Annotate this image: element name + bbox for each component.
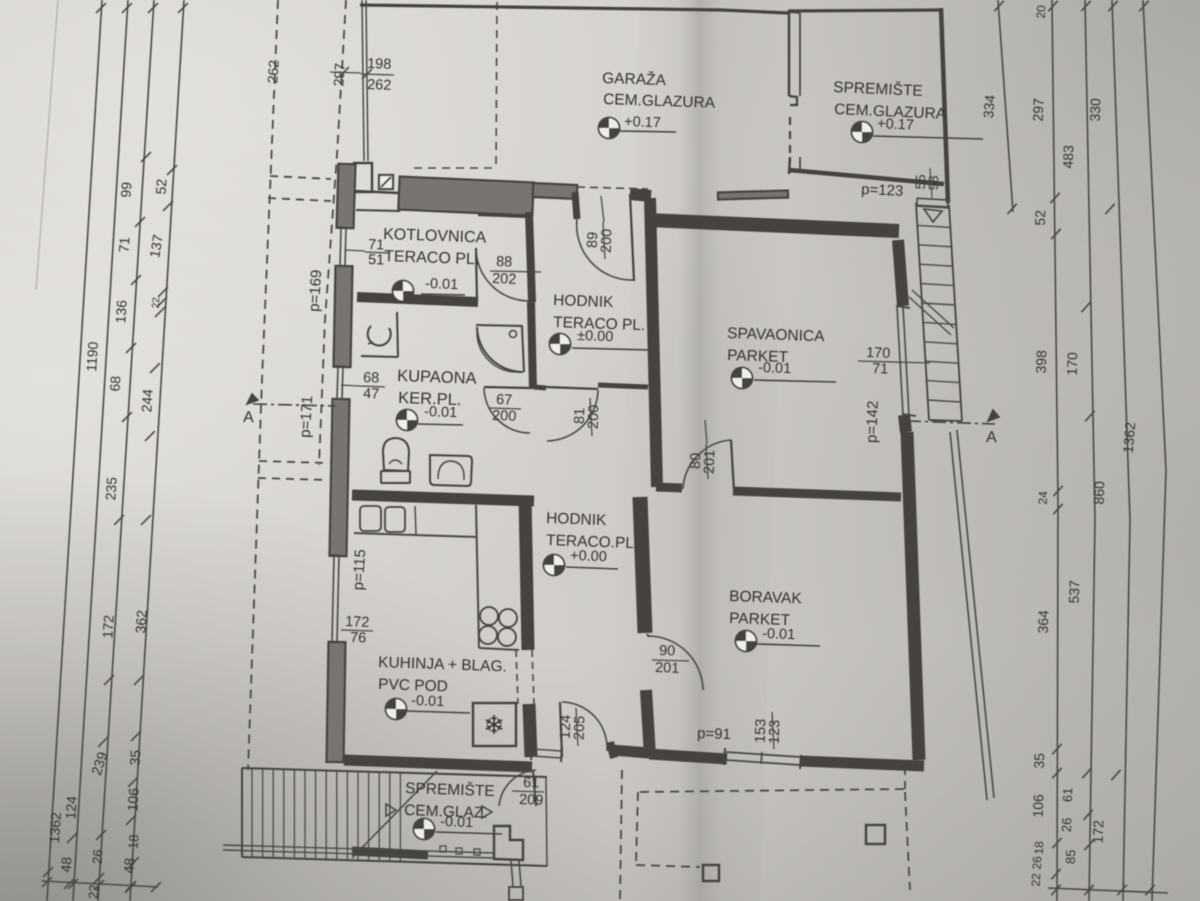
svg-text:47: 47 bbox=[363, 386, 380, 403]
svg-text:61: 61 bbox=[523, 775, 540, 792]
svg-text:201: 201 bbox=[702, 449, 719, 474]
svg-text:68: 68 bbox=[363, 370, 380, 387]
svg-text:362: 362 bbox=[132, 609, 149, 634]
svg-text:A: A bbox=[243, 409, 255, 426]
svg-text:-0.01: -0.01 bbox=[411, 693, 445, 710]
svg-text:398: 398 bbox=[1033, 350, 1050, 374]
svg-text:20: 20 bbox=[1034, 5, 1048, 19]
svg-text:35: 35 bbox=[1031, 753, 1048, 769]
svg-text:202: 202 bbox=[492, 271, 517, 288]
svg-text:123: 123 bbox=[767, 719, 784, 744]
svg-text:-0.01: -0.01 bbox=[762, 626, 796, 643]
svg-text:124: 124 bbox=[62, 795, 79, 820]
svg-text:p=169: p=169 bbox=[306, 269, 326, 312]
svg-text:BORAVAK: BORAVAK bbox=[729, 588, 803, 608]
svg-text:1362: 1362 bbox=[46, 811, 64, 843]
svg-text:22: 22 bbox=[86, 884, 102, 899]
svg-text:26: 26 bbox=[90, 849, 106, 864]
svg-text:860: 860 bbox=[1091, 481, 1108, 505]
svg-text:106: 106 bbox=[1030, 794, 1047, 818]
svg-text:51: 51 bbox=[368, 252, 385, 269]
svg-text:364: 364 bbox=[1035, 610, 1052, 634]
svg-text:52: 52 bbox=[1032, 210, 1049, 226]
svg-text:+0.17: +0.17 bbox=[877, 116, 914, 134]
svg-text:24: 24 bbox=[1036, 491, 1050, 505]
svg-text:48: 48 bbox=[58, 856, 75, 873]
svg-text:22: 22 bbox=[151, 297, 163, 309]
svg-text:334: 334 bbox=[980, 94, 998, 119]
svg-text:52: 52 bbox=[153, 178, 170, 195]
svg-text:136: 136 bbox=[112, 299, 129, 324]
svg-text:22: 22 bbox=[1029, 873, 1043, 887]
svg-text:172: 172 bbox=[345, 614, 370, 631]
svg-text:±0.00: ±0.00 bbox=[577, 328, 614, 345]
svg-text:+0.17: +0.17 bbox=[624, 114, 661, 131]
svg-text:p=171: p=171 bbox=[297, 395, 317, 438]
svg-text:235: 235 bbox=[102, 476, 119, 501]
svg-text:172: 172 bbox=[99, 614, 116, 639]
svg-text:GARAŽA: GARAŽA bbox=[602, 70, 667, 89]
svg-text:88: 88 bbox=[496, 254, 513, 271]
svg-text:SPREMIŠTE: SPREMIŠTE bbox=[405, 780, 495, 800]
svg-text:-0.01: -0.01 bbox=[440, 814, 474, 831]
svg-text:170: 170 bbox=[866, 345, 891, 362]
svg-text:1362: 1362 bbox=[1120, 421, 1139, 454]
svg-text:-0.01: -0.01 bbox=[424, 404, 458, 421]
svg-text:209: 209 bbox=[519, 792, 544, 809]
svg-text:106: 106 bbox=[124, 787, 141, 812]
svg-text:SPAVAONICA: SPAVAONICA bbox=[727, 325, 826, 345]
svg-text:76: 76 bbox=[350, 630, 367, 647]
svg-text:-0.01: -0.01 bbox=[425, 276, 459, 293]
svg-text:❄: ❄ bbox=[483, 710, 505, 740]
svg-text:26: 26 bbox=[1030, 856, 1044, 870]
svg-text:35: 35 bbox=[127, 749, 144, 766]
svg-text:297: 297 bbox=[330, 62, 347, 87]
svg-text:68: 68 bbox=[107, 375, 124, 392]
svg-text:262: 262 bbox=[367, 77, 392, 94]
svg-text:201: 201 bbox=[655, 660, 680, 677]
svg-text:HODNIK: HODNIK bbox=[546, 510, 607, 529]
svg-text:KOTLOVNICA: KOTLOVNICA bbox=[383, 226, 487, 247]
svg-text:483: 483 bbox=[1060, 145, 1077, 169]
svg-text:A: A bbox=[986, 429, 998, 446]
svg-text:TERACO PL.: TERACO PL. bbox=[384, 248, 480, 268]
svg-text:85: 85 bbox=[1063, 849, 1078, 864]
svg-text:98: 98 bbox=[926, 175, 942, 191]
svg-text:48: 48 bbox=[121, 857, 138, 874]
svg-text:18: 18 bbox=[1032, 841, 1046, 855]
svg-text:71: 71 bbox=[116, 236, 133, 253]
svg-text:90: 90 bbox=[659, 643, 676, 660]
svg-text:61: 61 bbox=[1060, 787, 1075, 802]
svg-text:172: 172 bbox=[1090, 820, 1107, 844]
svg-text:HODNIK: HODNIK bbox=[553, 292, 614, 311]
svg-text:p=91: p=91 bbox=[697, 725, 731, 743]
svg-text:200: 200 bbox=[492, 408, 517, 425]
svg-text:1190: 1190 bbox=[83, 341, 101, 372]
svg-text:p=142: p=142 bbox=[863, 400, 881, 443]
svg-text:18: 18 bbox=[126, 834, 142, 849]
svg-text:p=123: p=123 bbox=[861, 181, 904, 200]
svg-text:26: 26 bbox=[1059, 817, 1074, 832]
svg-text:67: 67 bbox=[496, 392, 513, 409]
svg-text:330: 330 bbox=[1087, 98, 1104, 122]
svg-text:-0.01: -0.01 bbox=[758, 360, 792, 377]
svg-text:99: 99 bbox=[118, 181, 135, 198]
svg-text:200: 200 bbox=[599, 228, 616, 253]
svg-text:71: 71 bbox=[368, 237, 385, 254]
svg-text:205: 205 bbox=[572, 715, 589, 740]
svg-text:p=115: p=115 bbox=[350, 549, 369, 591]
svg-text:170: 170 bbox=[1064, 352, 1081, 376]
svg-text:200: 200 bbox=[586, 404, 603, 429]
svg-text:71: 71 bbox=[872, 361, 889, 378]
svg-text:+0.00: +0.00 bbox=[570, 548, 607, 565]
svg-text:244: 244 bbox=[138, 388, 155, 413]
svg-text:537: 537 bbox=[1066, 580, 1083, 604]
svg-text:297: 297 bbox=[1030, 98, 1047, 122]
svg-text:KUPAONA: KUPAONA bbox=[397, 367, 477, 388]
svg-text:262: 262 bbox=[264, 59, 281, 84]
